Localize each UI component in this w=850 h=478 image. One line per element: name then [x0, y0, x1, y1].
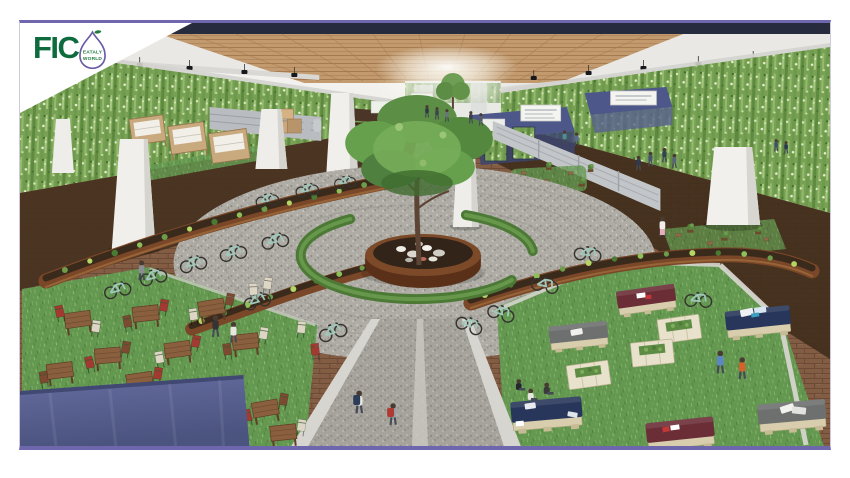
- architectural-rendering: FIC EATALY WORLD: [0, 0, 850, 478]
- logo-bulb-word-1: EATALY: [83, 50, 103, 56]
- image-frame: FIC EATALY WORLD: [19, 20, 831, 450]
- navy-stall-right: [585, 87, 673, 133]
- logo-text: FIC: [33, 32, 78, 63]
- stall-sign-board: [521, 105, 561, 121]
- logo-bulb-word-2: WORLD: [83, 56, 102, 62]
- garlic-leaf: [95, 30, 102, 33]
- backpack: [387, 408, 394, 417]
- fico-logo: FIC EATALY WORLD: [33, 32, 111, 73]
- crate-table: [630, 339, 674, 367]
- backpack: [353, 395, 360, 405]
- market-hall-scene: [20, 23, 830, 446]
- stall-sign-board: [611, 91, 657, 105]
- logo-garlic-icon: EATALY WORLD: [74, 29, 111, 73]
